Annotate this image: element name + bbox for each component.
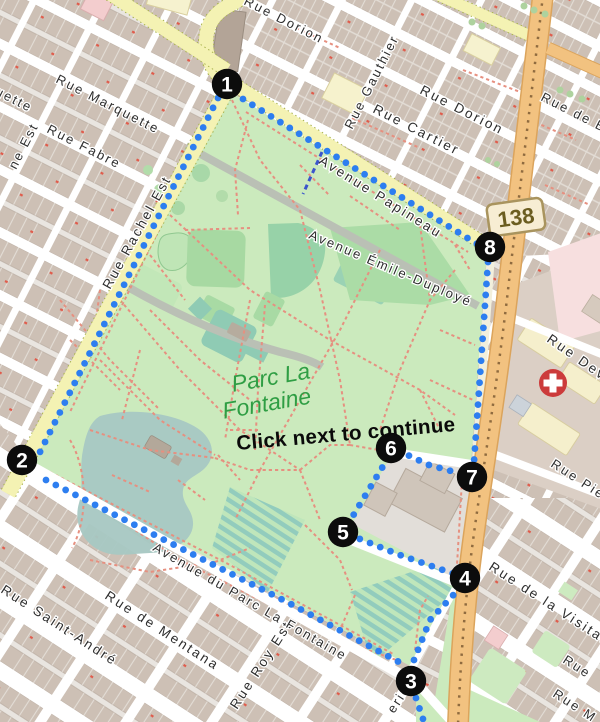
svg-text:7: 7	[466, 467, 478, 490]
svg-text:3: 3	[405, 671, 417, 694]
svg-text:5: 5	[337, 522, 349, 545]
svg-text:138: 138	[496, 203, 536, 233]
svg-text:1: 1	[221, 74, 233, 97]
svg-text:4: 4	[459, 568, 471, 591]
svg-text:2: 2	[16, 450, 28, 473]
svg-text:8: 8	[484, 237, 496, 260]
